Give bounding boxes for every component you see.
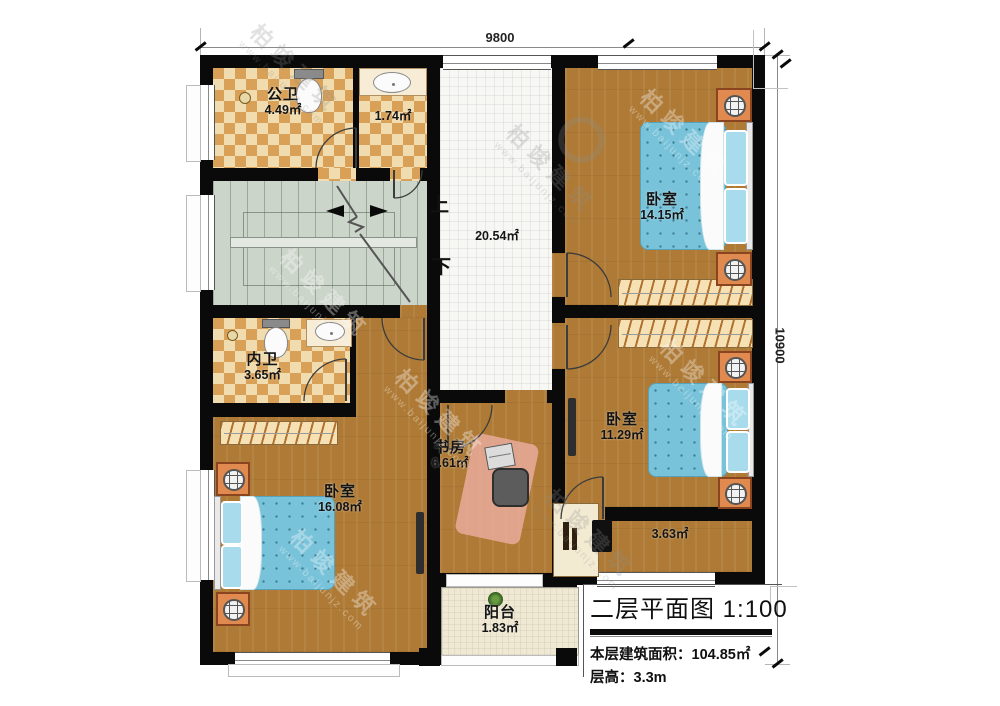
dim-width-label: 9800 [440,30,560,45]
stair-direction-arrow [326,186,410,302]
floor-height-line: 层高：3.3m [590,666,782,687]
door-swing-overlay [0,0,1000,706]
dim-ext-top-left [200,28,201,55]
label-corridor: 3.63㎡ [620,528,720,542]
label-balcony: 阳台 1.83㎡ [450,605,550,635]
room-area: 1.83㎡ [450,622,550,636]
room-area: 3.63㎡ [620,528,720,542]
room-name: 内卫 [215,352,310,369]
title-underline [590,629,772,635]
room-area: 3.65㎡ [215,369,310,383]
label-bedroom-left: 卧室 16.08㎡ [290,484,390,514]
floor-height-label: 层高： [590,670,634,686]
dim-line-top [200,47,765,48]
floor-area-line: 本层建筑面积：104.85㎡ [590,643,782,664]
title-block: 二层平面图 1:100 本层建筑面积：104.85㎡ 层高：3.3m [583,584,782,677]
plan-title-text: 二层平面图 [590,596,715,623]
room-name: 公卫 [233,87,333,104]
room-area: 1.74㎡ [358,110,428,124]
label-bedroom-top-right: 卧室 14.15㎡ [612,192,712,222]
room-area: 20.54㎡ [447,230,547,244]
label-public-bath: 公卫 4.49㎡ [233,87,333,117]
dim-height-label: 10900 [773,316,788,376]
label-hallway: 20.54㎡ [447,230,547,244]
room-area: 14.15㎡ [612,209,712,223]
floor-area-label: 本层建筑面积： [590,647,692,663]
floor-height-value: 3.3m [634,670,667,686]
room-name: 书房 [414,440,486,457]
stair-up-label: 上 [430,190,449,217]
plan-title: 二层平面图 1:100 [590,589,782,624]
label-shower-room: 1.74㎡ [358,110,428,124]
label-study: 书房 6.61㎡ [414,440,486,470]
stair-down-label: 下 [432,252,451,279]
room-area: 11.29㎡ [572,429,672,443]
corner-bracket-top-right [753,30,788,89]
room-name: 卧室 [290,484,390,501]
floorplan-canvas: 公卫 4.49㎡ 1.74㎡ 20.54㎡ 上 下 卧室 14.15㎡ 内卫 3… [0,0,1000,706]
room-name: 阳台 [450,605,550,622]
label-bedroom-right: 卧室 11.29㎡ [572,412,672,442]
room-name: 卧室 [612,192,712,209]
room-area: 4.49㎡ [233,104,333,118]
floor-area-value: 104.85㎡ [692,647,751,663]
room-area: 6.61㎡ [414,457,486,471]
plan-scale: 1:100 [723,596,788,623]
title-underline-thin [590,636,772,637]
room-area: 16.08㎡ [290,501,390,515]
label-private-bath: 内卫 3.65㎡ [215,352,310,382]
room-name: 卧室 [572,412,672,429]
